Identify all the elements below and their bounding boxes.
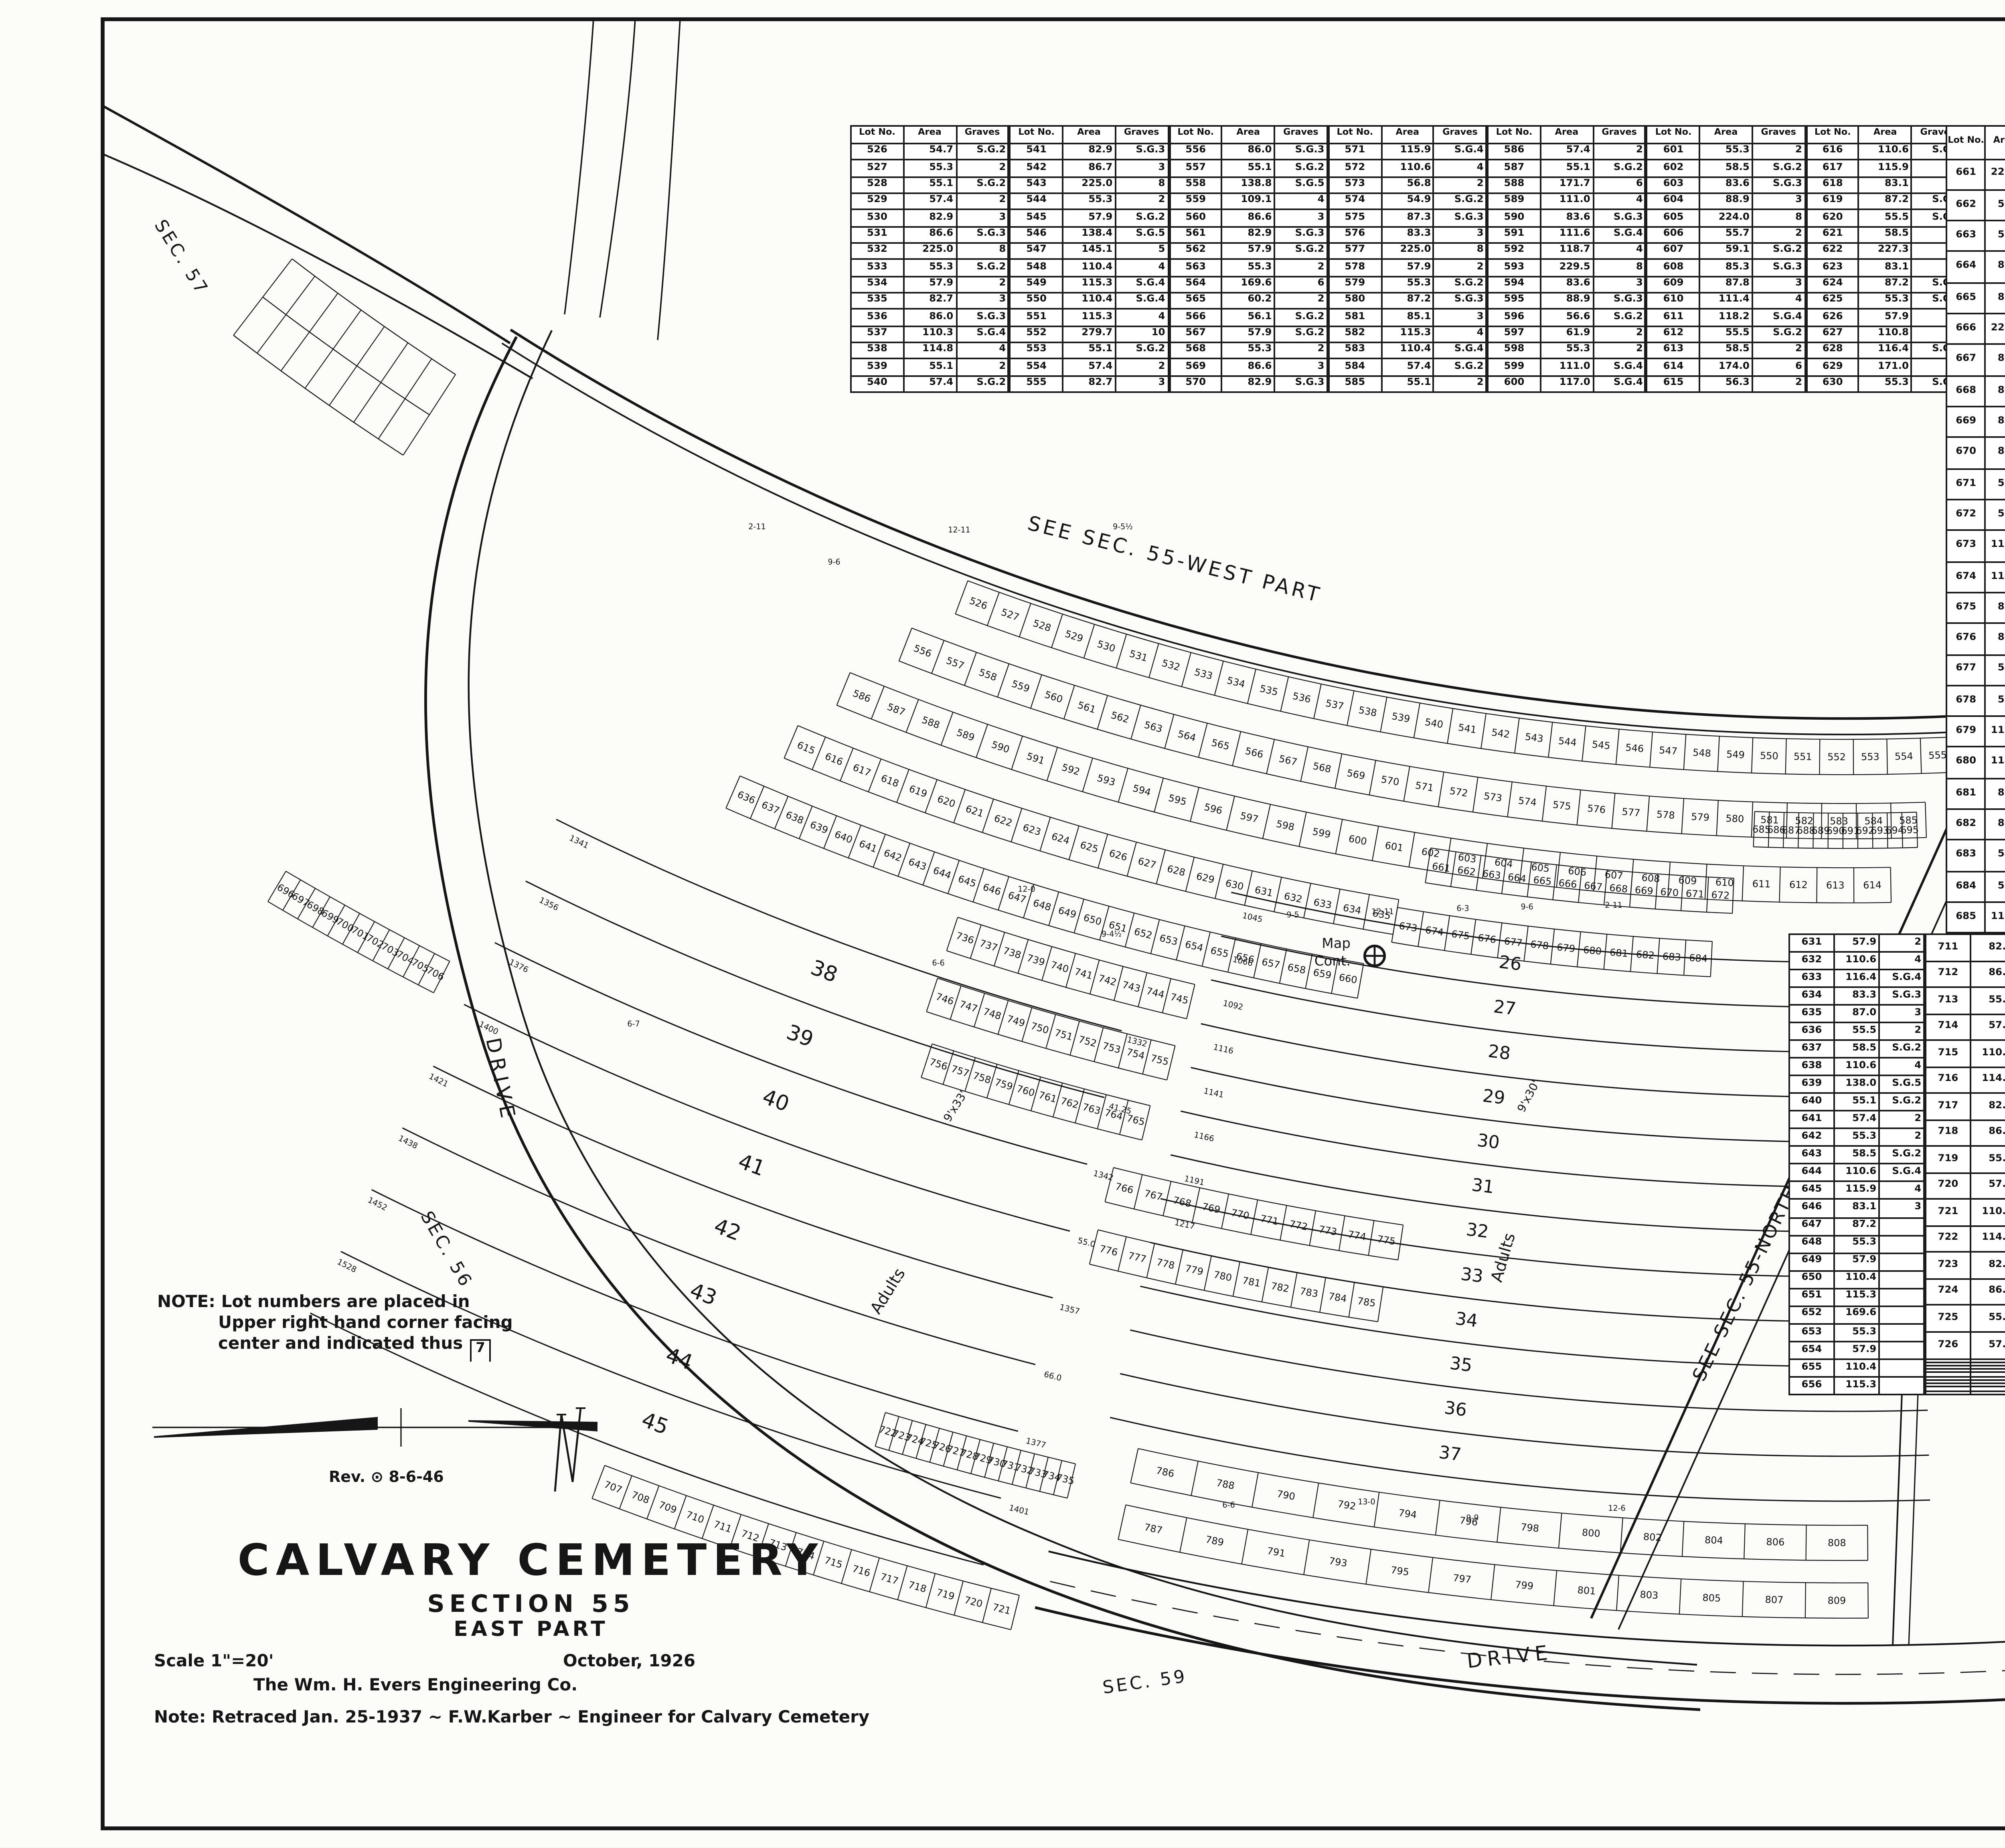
table-cell: 721 (1926, 1199, 1971, 1226)
lot-number-label: 574 (1518, 795, 1537, 808)
table-row: 72057.4 (1926, 1173, 2005, 1199)
table-cell: 86.0 (1985, 437, 2005, 468)
table-cell: 111.0 (1541, 193, 1593, 210)
strip-number-label: 33 (1460, 1264, 1485, 1287)
table-row: 571115.9S.G.4 (1329, 144, 1486, 160)
plot-divider (1134, 1175, 1142, 1209)
table-cell: 2 (1274, 342, 1327, 359)
column-header: Lot No. (1488, 126, 1541, 144)
table-cell: 82.7 (1971, 1253, 2005, 1279)
table-row: 57082.9S.G.3 (1169, 375, 1327, 392)
lot-number-label: 633 (1312, 897, 1333, 911)
strip-tick-label: 1438 (397, 1133, 419, 1151)
plot-divider (1232, 731, 1241, 766)
plot-divider (1226, 796, 1234, 830)
lot-number-label: 784 (1328, 1291, 1348, 1305)
lot-number-label: 792 (1337, 1498, 1357, 1512)
plot-band-edge (1397, 907, 1712, 941)
table-cell: 576 (1329, 227, 1381, 243)
lot-number-label: 739 (1025, 952, 1046, 968)
table-cell: 8 (1115, 177, 1168, 193)
plot-divider (1752, 738, 1753, 773)
lot-number-label: 541 (1457, 722, 1477, 736)
table-cell: 547 (1010, 243, 1063, 259)
table-cell: S.G.4 (956, 326, 1009, 342)
table-cell: 115.3 (1063, 276, 1115, 292)
table-cell: S.G.3 (1593, 210, 1646, 226)
plot-divider (982, 799, 994, 833)
table-cell: S.G.2 (1274, 160, 1327, 176)
table-cell: 115.9 (1381, 144, 1434, 160)
table-cell: 82.9 (1222, 227, 1274, 243)
plot-divider (1248, 669, 1256, 704)
lot-number-label: 558 (977, 666, 998, 683)
table-cell: 82.7 (1971, 1093, 2005, 1120)
lot-number-label: 752 (1077, 1034, 1098, 1049)
table-cell: 55.3 (1063, 193, 1115, 210)
plot-divider (1175, 1250, 1183, 1284)
sliver-divider (305, 310, 361, 388)
lot-number-label: 665 (1533, 874, 1552, 887)
date-note: October, 1926 (563, 1652, 695, 1671)
table-row: 62657.92 (1807, 309, 1964, 326)
plot-divider (1221, 1194, 1229, 1229)
plot-divider (897, 769, 909, 803)
table-cell: 56.8 (1985, 685, 2005, 716)
table-cell: 725 (1926, 1306, 1971, 1332)
table-cell: 641 (1789, 1111, 1834, 1129)
table-cell: 626 (1807, 309, 1859, 326)
table-cell: S.G.2 (1593, 160, 1646, 176)
table-cell: 723 (1926, 1253, 1971, 1279)
table-cell: 55.3 (1834, 1129, 1879, 1146)
table-cell (1926, 1384, 1971, 1387)
lot-number-label: 684 (1689, 952, 1708, 964)
lot-number-label: 675 (1451, 928, 1470, 942)
lot-number-label: 526 (968, 595, 989, 612)
table-cell: 594 (1488, 276, 1541, 292)
table-cell: 4 (1115, 259, 1168, 276)
table-row: 52855.1S.G.2 (851, 177, 1009, 193)
table-cell: S.G.2 (1752, 326, 1805, 342)
table-cell: 57.9 (1222, 326, 1274, 342)
table-cell: 631 (1789, 934, 1834, 952)
table-cell: 3 (1752, 193, 1805, 210)
table-cell: 60.2 (1222, 293, 1274, 309)
lot-number-label: 655 (1209, 945, 1230, 960)
plot-divider (1280, 1205, 1286, 1240)
strip-tick-label: 1166 (1193, 1130, 1215, 1144)
table-row: 72382.7 (1926, 1253, 2005, 1279)
plot-divider (1436, 1500, 1440, 1535)
table-cell: 628 (1807, 342, 1859, 359)
table-row: 71886.0 (1926, 1120, 2005, 1146)
table-row: 63157.92 (1789, 934, 1924, 952)
lot-number-label: 800 (1582, 1527, 1601, 1539)
lot-number-label: 595 (1167, 792, 1188, 808)
table-cell: 55.1 (1971, 1146, 2005, 1173)
table-cell: 55.1 (1541, 160, 1593, 176)
table-cell: 564 (1169, 276, 1222, 292)
table-cell: 2 (956, 359, 1009, 375)
table-cell: 655 (1789, 1359, 1834, 1376)
table-row: 53355.3S.G.2 (851, 259, 1009, 276)
table-cell: 4 (1752, 293, 1805, 309)
plot-divider (1263, 804, 1270, 839)
plot-divider (1744, 1524, 1745, 1559)
table-cell: 2 (1879, 1023, 1924, 1040)
table-cell: 87.8 (1985, 283, 2005, 314)
table-row (1926, 1384, 2005, 1387)
table-cell: S.G.2 (956, 259, 1009, 276)
table-cell: 584 (1329, 359, 1381, 375)
table-row: 63055.3S.G.2 (1807, 375, 1964, 392)
plot-divider (1047, 747, 1057, 781)
table-cell: 724 (1926, 1279, 1971, 1306)
table-row: 62158.52 (1807, 227, 1964, 243)
lot-number-label: 781 (1241, 1275, 1262, 1289)
plot-band-edge (1753, 847, 1918, 848)
plot-divider (1363, 895, 1369, 929)
table-cell (1879, 1253, 1924, 1270)
table-cell: 656 (1789, 1376, 1834, 1395)
lot-number-label: 590 (990, 739, 1011, 755)
lot-table-grid: Lot No.AreaGraves616110.6S.G.4617115.946… (1806, 125, 1965, 393)
table-cell (1926, 1366, 1971, 1369)
table-cell: 82.9 (1985, 345, 2005, 376)
plot-divider (1779, 867, 1780, 902)
table-cell: 683 (1946, 840, 1985, 871)
lot-number-label: 580 (1726, 813, 1744, 825)
table-cell: 83.1 (1834, 1200, 1879, 1217)
table-cell: 548 (1010, 259, 1063, 276)
strip-tick-label: 1401 (1008, 1503, 1030, 1517)
table-cell: 4 (1593, 243, 1646, 259)
strip-tick-label: 1421 (427, 1071, 450, 1089)
table-row: 633116.4S.G.4 (1789, 970, 1924, 987)
plot-divider (1438, 772, 1444, 807)
table-cell: 588 (1488, 177, 1541, 193)
table-cell: 2 (1115, 359, 1168, 375)
lot-number-label: 744 (1145, 985, 1166, 1000)
sliver-divider (379, 359, 432, 439)
table-row: 67582.7S.G.3 (1946, 593, 2005, 623)
plot-divider (1806, 1525, 1807, 1560)
table-cell: 110.4 (1063, 259, 1115, 276)
table-row: 59855.32 (1488, 342, 1646, 359)
table-cell: S.G.5 (1879, 1076, 1924, 1093)
table-cell: 56.6 (1541, 309, 1593, 326)
table-cell: S.G.2 (1115, 210, 1168, 226)
table-cell (1879, 1217, 1924, 1235)
table-cell: 55.1 (1985, 469, 2005, 500)
table-cell: 54.7 (903, 144, 956, 160)
table-cell: S.G.2 (1434, 193, 1486, 210)
lot-number-label: 786 (1155, 1465, 1175, 1480)
table-cell: 3 (1879, 1005, 1924, 1023)
table-row: 64957.9 (1789, 1253, 1924, 1270)
table-row: 572110.64 (1329, 160, 1486, 176)
table-cell: 54.9 (1985, 654, 2005, 685)
company-name: The Wm. H. Evers Engineering Co. (253, 1676, 988, 1695)
table-row: 628116.4S.G.4 (1807, 342, 1964, 359)
strip-tick-label: 1342 (1092, 1168, 1114, 1183)
lot-number-label: 780 (1213, 1269, 1233, 1284)
note-line-1: NOTE: Lot numbers are placed in (157, 1293, 513, 1314)
table-cell: S.G.2 (1274, 243, 1327, 259)
table-cell: 118.7 (1541, 243, 1593, 259)
lot-number-label: 771 (1259, 1213, 1279, 1227)
plot-divider (647, 1486, 659, 1519)
table-cell: 3 (1593, 276, 1646, 292)
lot-number-label: 681 (1609, 947, 1628, 959)
plot-divider (1577, 790, 1581, 825)
plot-divider (1299, 812, 1306, 846)
lot-number-label: 565 (1210, 737, 1231, 752)
table-row: 66357.92 (1946, 221, 2005, 252)
lot-number-label: 735 (1055, 1472, 1075, 1487)
plot-divider (1118, 1505, 1126, 1539)
table-cell: 643 (1789, 1147, 1834, 1164)
table-cell: S.G.2 (1879, 1093, 1924, 1111)
lot-table-top-group-7: Lot No.AreaGraves616110.6S.G.4617115.946… (1806, 125, 1965, 393)
lot-number-label: 537 (1325, 697, 1345, 712)
table-cell: 558 (1169, 177, 1222, 193)
lot-number-label: 677 (1503, 935, 1523, 949)
adult-strip-line (464, 1004, 1070, 1231)
table-cell: 55.3 (1700, 144, 1752, 160)
plot-band-edge (850, 673, 1890, 868)
plot-divider (1274, 877, 1281, 912)
plot-divider (1819, 739, 1820, 775)
lot-number-label: 809 (1827, 1595, 1846, 1606)
table-row: 610111.44 (1647, 293, 1805, 309)
column-header: Area (1541, 126, 1593, 144)
table-cell: 640 (1789, 1093, 1834, 1111)
table-cell: 114.8 (1971, 1226, 2005, 1252)
table-row: 622227.38 (1807, 243, 1964, 259)
table-row: 55755.1S.G.2 (1169, 160, 1327, 176)
table-row: 59761.92 (1488, 326, 1646, 342)
plot-divider (1497, 1507, 1501, 1542)
table-row: 644110.6S.G.4 (1789, 1164, 1924, 1182)
table-row: 593229.58 (1488, 259, 1646, 276)
table-cell: 54.9 (1985, 840, 2005, 871)
match-line (152, 1408, 597, 1447)
table-cell: 224.0 (1700, 210, 1752, 226)
table-row: 56656.1S.G.2 (1169, 309, 1327, 326)
table-cell: 638 (1789, 1058, 1834, 1076)
lot-number-label: 547 (1659, 745, 1678, 757)
lot-number-label: 543 (1524, 731, 1544, 744)
table-cell: 598 (1488, 342, 1541, 359)
map-cont-label-1: Map (1322, 935, 1351, 951)
lot-number-label: 552 (1827, 751, 1846, 763)
strip-number-label: 39 (783, 1020, 816, 1052)
strip-tick-label: 1045 (1241, 911, 1264, 924)
table-cell: 681 (1946, 778, 1985, 809)
table-cell (1926, 1387, 1971, 1391)
table-cell: 580 (1329, 293, 1381, 309)
lot-number-label: 529 (1063, 628, 1084, 644)
table-row: 57683.33 (1329, 227, 1486, 243)
table-cell: 2 (1434, 375, 1486, 392)
lot-number-label: 653 (1158, 932, 1179, 947)
strip-number-label: 34 (1454, 1308, 1479, 1331)
table-cell: 635 (1789, 1005, 1834, 1023)
revision-note: Rev. ⊙ 8-6-46 (329, 1469, 444, 1487)
table-cell: 8 (1752, 210, 1805, 226)
table-cell: 646 (1789, 1200, 1834, 1217)
lot-number-label: 799 (1515, 1579, 1534, 1592)
table-row: 53582.73 (851, 293, 1009, 309)
table-row: 605224.08 (1647, 210, 1805, 226)
lot-number-label: 596 (1203, 801, 1223, 816)
table-cell: 589 (1488, 193, 1541, 210)
lot-number-label: 602 (1421, 846, 1441, 860)
adults-center-dim-label: 9'x30' (1515, 1078, 1542, 1114)
strip-number-label: 30 (1476, 1130, 1501, 1153)
table-cell: 627 (1807, 326, 1859, 342)
table-cell: 597 (1488, 326, 1541, 342)
table-cell: 550 (1010, 293, 1063, 309)
plot-divider (620, 1476, 632, 1509)
lot-number-label: 740 (1049, 959, 1070, 975)
plot-divider (1320, 1277, 1326, 1312)
sliver-divider (354, 343, 408, 422)
table-cell: 679 (1946, 717, 1985, 747)
plot-divider (1553, 865, 1557, 900)
dimension-label: 6-7 (627, 1019, 640, 1028)
table-cell: 672 (1946, 500, 1985, 530)
strip-tick-label: 55.0 (1077, 1235, 1096, 1249)
plot-divider (1347, 691, 1354, 725)
table-row: 651115.3 (1789, 1288, 1924, 1306)
lot-table-grid: 63157.92632110.64633116.4S.G.463483.3S.G… (1788, 933, 1925, 1395)
plot-divider (1190, 787, 1199, 821)
table-cell: 677 (1946, 654, 1985, 685)
table-cell: 615 (1647, 375, 1700, 392)
lot-number-label: 610 (1715, 876, 1734, 889)
lot-number-label: 636 (736, 789, 757, 806)
table-cell: 680 (1946, 747, 1985, 778)
table-row: 54455.32 (1010, 193, 1168, 210)
lot-number-label: 575 (1552, 799, 1572, 812)
table-row: 680114.84 (1946, 747, 2005, 778)
lot-number-label: 654 (1184, 939, 1204, 954)
table-cell: 56.8 (1985, 871, 2005, 902)
plot-band-edge (955, 614, 1955, 775)
table-row (1926, 1373, 2005, 1376)
strip-tick-label: 1116 (1213, 1042, 1235, 1056)
plot-divider (906, 699, 919, 732)
lot-table-middle-group-b: 71182.771286.071355.171457.4715110.37161… (1925, 933, 2005, 1395)
lot-number-label: 598 (1275, 818, 1296, 833)
plot-divider (1304, 1540, 1309, 1575)
table-cell: 57.9 (1985, 221, 2005, 252)
table-cell: 87.2 (1859, 276, 1912, 292)
table-cell (1971, 1366, 2005, 1369)
table-row: 67856.8S.G.2 (1946, 685, 2005, 716)
table-cell: 2 (1752, 342, 1805, 359)
lot-number-label: 533 (1193, 666, 1214, 682)
lot-number-label: 576 (1587, 803, 1606, 816)
table-cell: 55.3 (1859, 293, 1912, 309)
lot-number-label: 759 (993, 1077, 1014, 1093)
table-cell: S.G.3 (1274, 227, 1327, 243)
table-row: 71457.4 (1926, 1014, 2005, 1040)
table-cell: 110.3 (1971, 1040, 2005, 1067)
lot-number-label: 626 (1108, 847, 1129, 863)
table-cell: S.G.4 (1434, 342, 1486, 359)
table-cell: 87.0 (1834, 1005, 1879, 1023)
plot-divider (1414, 703, 1420, 738)
dimension-label: 13-0 (1358, 1497, 1375, 1506)
table-cell: 4 (1115, 309, 1168, 326)
lot-number-label: 804 (1704, 1534, 1723, 1546)
table-row: 64255.32 (1789, 1129, 1924, 1146)
plot-divider (925, 779, 937, 813)
sliver-divider (281, 293, 338, 371)
column-header: Graves (1752, 126, 1805, 144)
table-cell: 116.4 (1834, 970, 1879, 987)
lot-number-label: 770 (1230, 1207, 1250, 1222)
table-cell: 554 (1010, 359, 1063, 375)
table-cell: S.G.3 (956, 309, 1009, 326)
table-cell: 57.9 (1834, 1253, 1879, 1270)
table-cell (1879, 1376, 1924, 1395)
lot-number-label: 625 (1079, 839, 1100, 855)
table-cell: 685 (1946, 902, 1985, 933)
table-cell: 559 (1169, 193, 1222, 210)
lot-number-label: 706 (425, 964, 446, 983)
lot-number-label: 597 (1239, 810, 1260, 825)
table-cell: 86.6 (1222, 359, 1274, 375)
table-row: 60987.83 (1647, 276, 1805, 292)
table-cell: 622 (1807, 243, 1859, 259)
lot-number-label: 538 (1358, 704, 1378, 719)
plot-divider (784, 726, 798, 758)
table-cell: 3 (1115, 375, 1168, 392)
lot-table-grid: 71182.771286.071355.171457.4715110.37161… (1925, 933, 2005, 1395)
adults-left-label: Adults (867, 1265, 909, 1317)
table-cell: 637 (1789, 1040, 1834, 1058)
plot-divider (1630, 872, 1632, 907)
plot-divider (1887, 739, 1887, 774)
lot-number-label: 650 (1082, 912, 1103, 927)
table-cell: 86.0 (1985, 809, 2005, 840)
lot-number-label: 545 (1592, 739, 1611, 751)
table-row: 537110.3S.G.4 (851, 326, 1009, 342)
table-cell: 630 (1807, 375, 1859, 392)
lot-number-label: 711 (712, 1518, 733, 1535)
table-cell: 83.1 (1859, 259, 1912, 276)
plot-divider (1069, 826, 1079, 860)
table-row: 55582.73 (1010, 375, 1168, 392)
table-row: 56855.32 (1169, 342, 1327, 359)
table-cell: 82.7 (903, 293, 956, 309)
lot-number-label: 600 (1348, 833, 1368, 847)
dimension-label: 9-5 (1286, 910, 1299, 919)
lot-number-label: 797 (1452, 1572, 1472, 1585)
table-cell (1971, 1376, 2005, 1380)
table-row: 674114.8S.G.4 (1946, 561, 2005, 592)
lot-number-label: 751 (1053, 1027, 1074, 1042)
table-cell: 169.6 (1222, 276, 1274, 292)
table-cell: 2 (1752, 144, 1805, 160)
lot-number-label: 772 (1288, 1219, 1308, 1233)
table-cell: 4 (1593, 193, 1646, 210)
